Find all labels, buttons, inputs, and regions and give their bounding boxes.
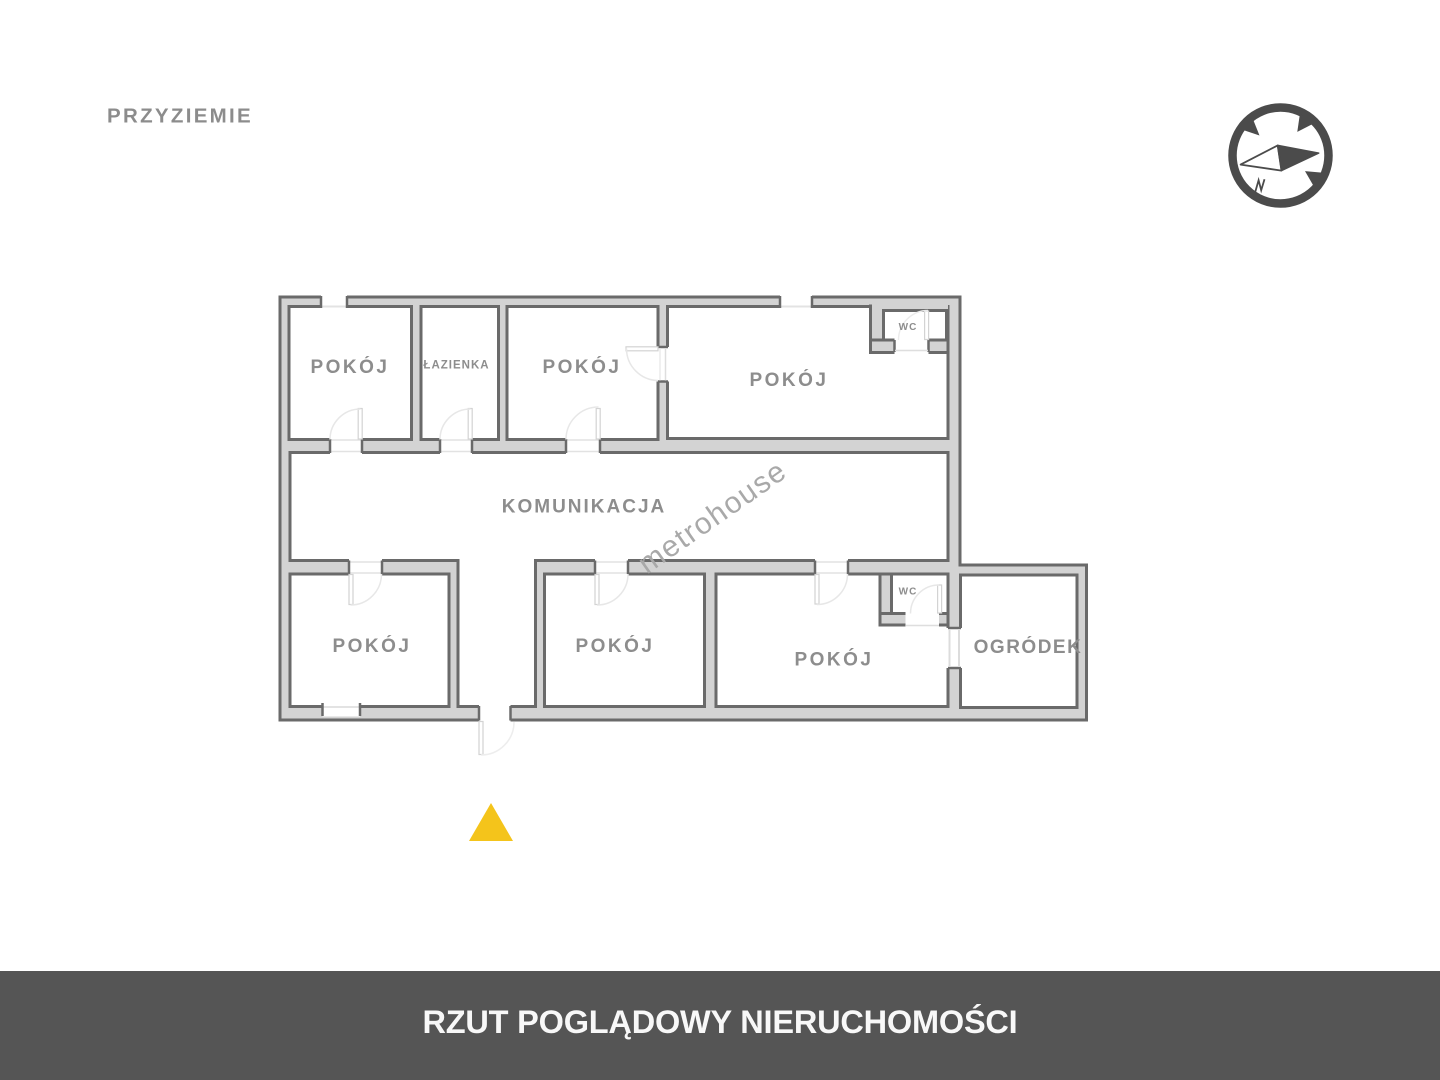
svg-text:WC: WC	[899, 587, 918, 598]
svg-text:POKÓJ: POKÓJ	[310, 356, 389, 378]
svg-text:RZUT POGLĄDOWY NIERUCHOMOŚCI: RZUT POGLĄDOWY NIERUCHOMOŚCI	[422, 1003, 1017, 1040]
svg-text:ŁAZIENKA: ŁAZIENKA	[423, 360, 489, 372]
svg-text:KOMUNIKACJA: KOMUNIKACJA	[502, 497, 667, 518]
svg-text:POKÓJ: POKÓJ	[794, 649, 873, 671]
svg-text:OGRÓDEK: OGRÓDEK	[974, 636, 1083, 658]
svg-text:POKÓJ: POKÓJ	[542, 356, 621, 378]
svg-text:WC: WC	[899, 322, 918, 333]
svg-text:POKÓJ: POKÓJ	[575, 635, 654, 657]
svg-text:PRZYZIEMIE: PRZYZIEMIE	[107, 105, 253, 128]
svg-text:POKÓJ: POKÓJ	[749, 369, 828, 391]
svg-text:POKÓJ: POKÓJ	[332, 635, 411, 657]
